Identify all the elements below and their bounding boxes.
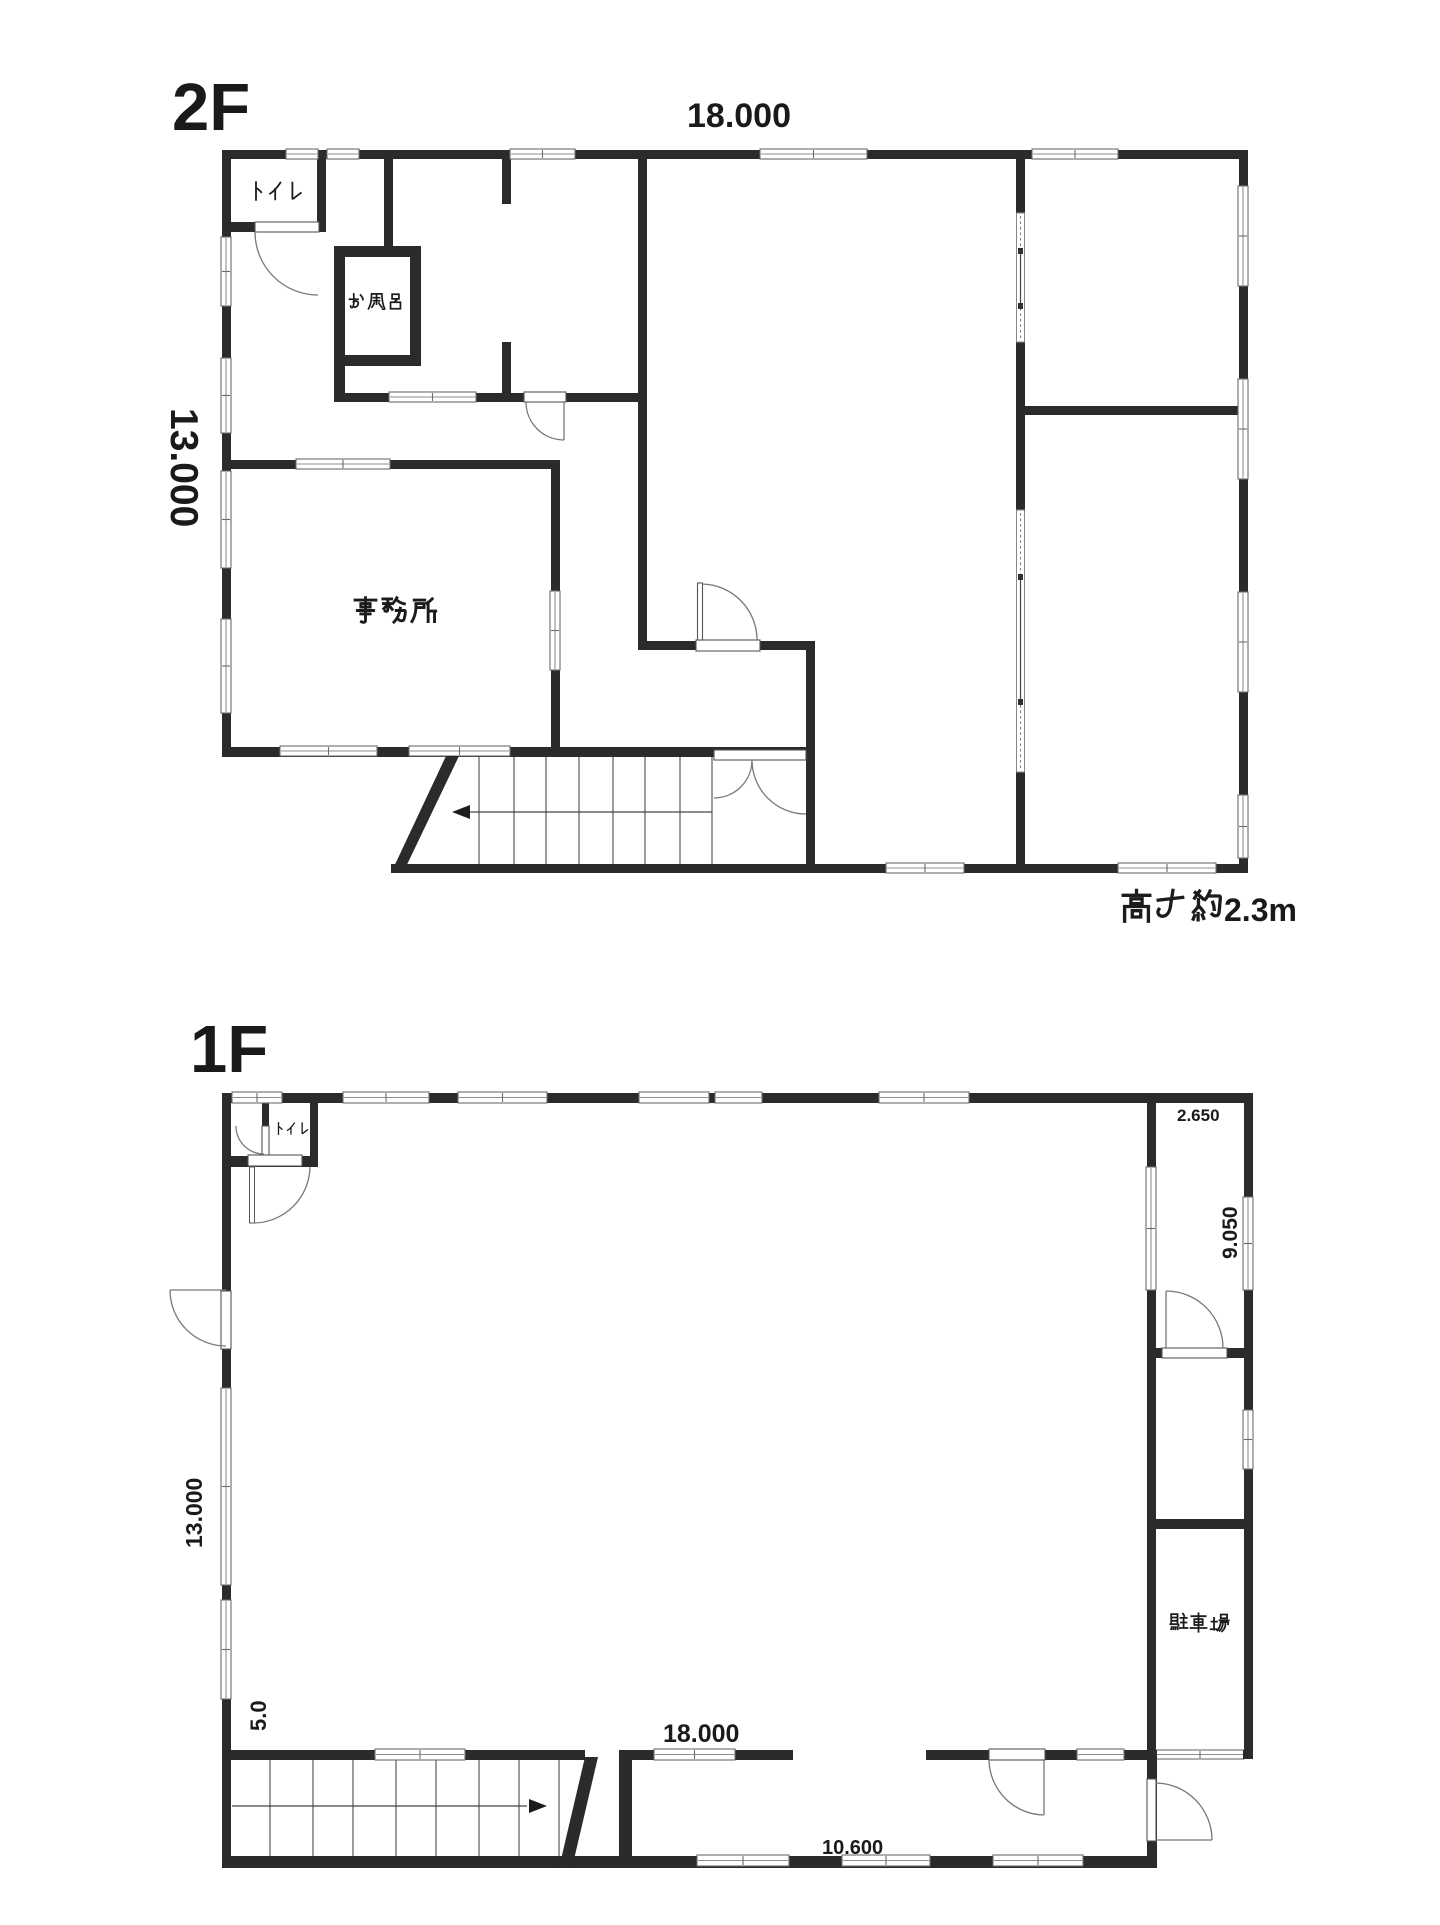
svg-text:2.650: 2.650	[1177, 1106, 1220, 1125]
svg-text:18.000: 18.000	[687, 97, 791, 135]
svg-text:2F: 2F	[172, 70, 250, 145]
svg-text:18.000: 18.000	[663, 1720, 739, 1748]
svg-text:2.3m: 2.3m	[1224, 892, 1297, 928]
svg-text:13.000: 13.000	[162, 408, 205, 527]
svg-text:1F: 1F	[190, 1012, 268, 1087]
svg-text:9.050: 9.050	[1219, 1206, 1242, 1259]
svg-text:13.000: 13.000	[181, 1478, 207, 1548]
svg-text:5.0: 5.0	[246, 1700, 271, 1731]
